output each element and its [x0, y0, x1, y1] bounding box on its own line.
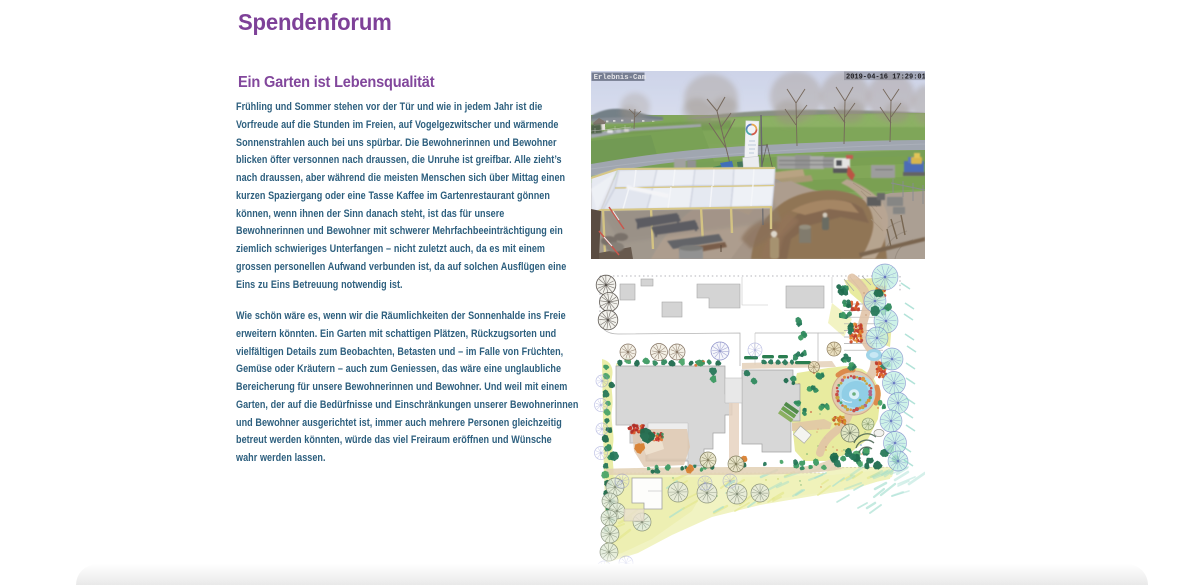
- svg-text:Erlebnis-Cam: Erlebnis-Cam: [594, 74, 647, 82]
- svg-text:2019-04-16 17:29:01: 2019-04-16 17:29:01: [846, 74, 925, 82]
